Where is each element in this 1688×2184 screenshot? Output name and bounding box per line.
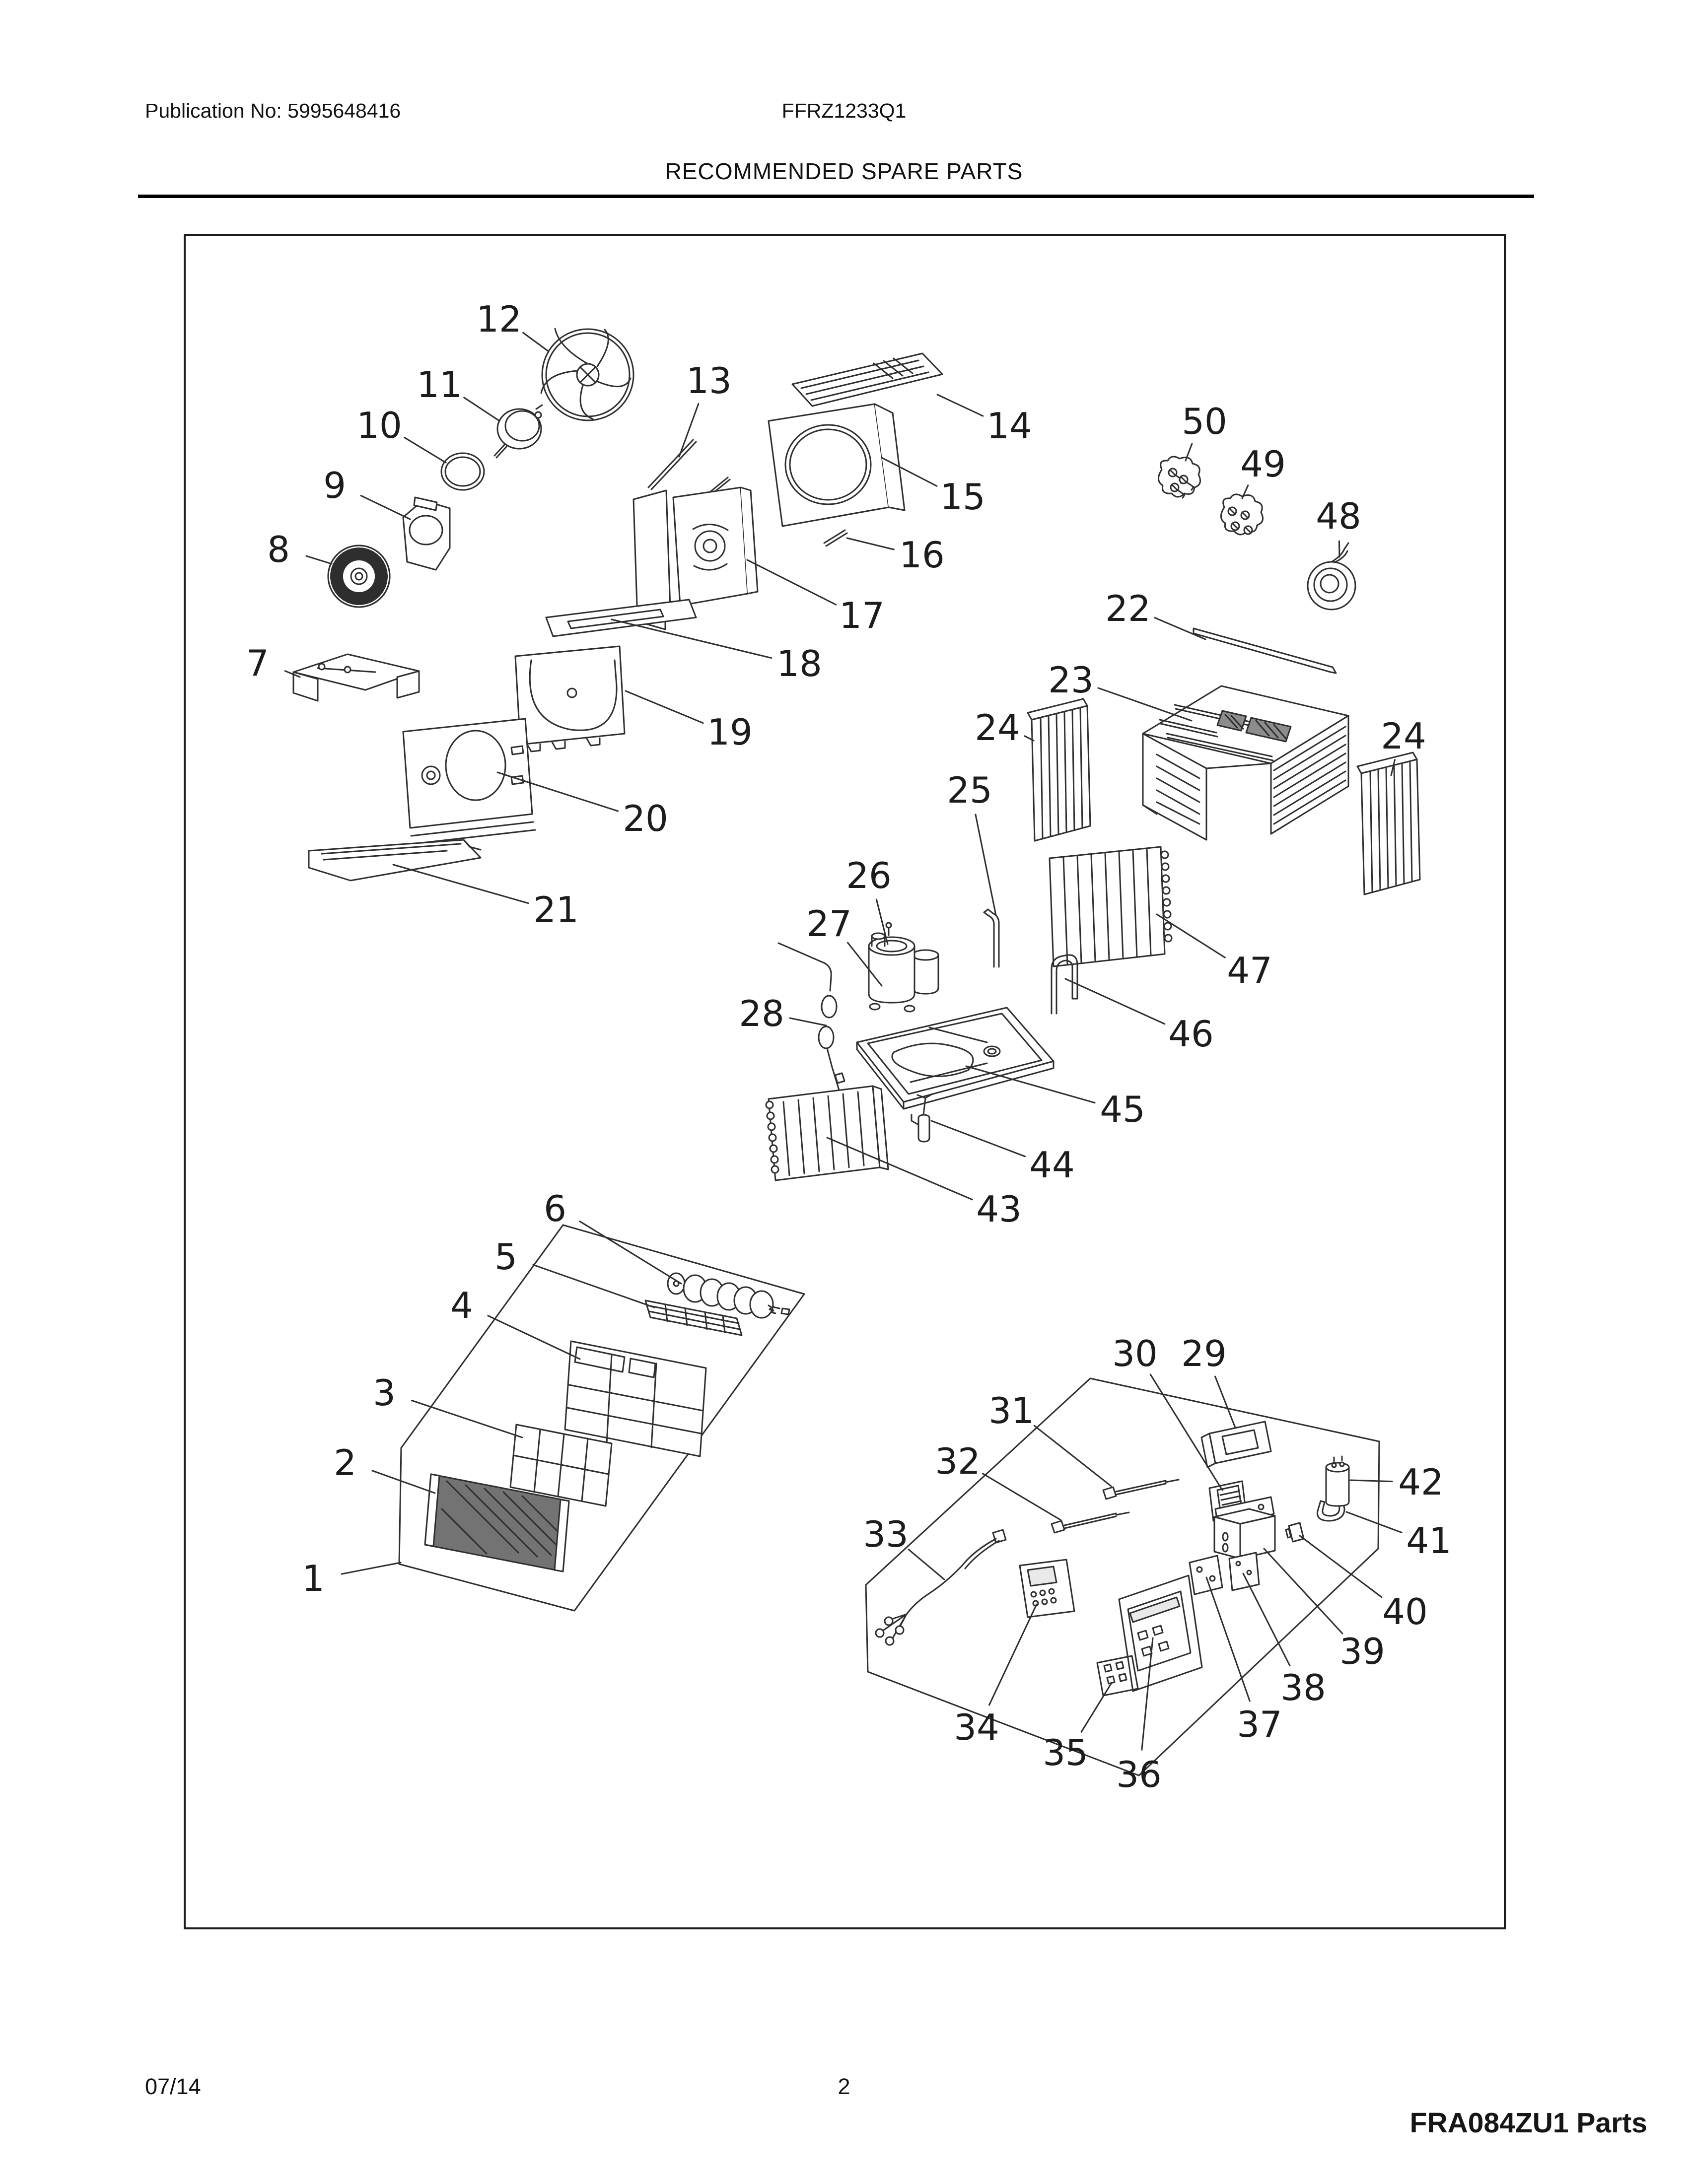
callout-42: 42	[1398, 1461, 1444, 1503]
callout-49: 49	[1240, 443, 1286, 485]
callout-47: 47	[1227, 950, 1272, 991]
leader-line-9	[361, 495, 410, 519]
callout-45: 45	[1100, 1089, 1145, 1130]
part-50-screw-kit	[1158, 457, 1200, 498]
callout-25: 25	[947, 769, 992, 811]
part-11-fan-motor	[494, 405, 542, 458]
callout-7: 7	[246, 642, 269, 684]
footer-page-number: 2	[0, 2074, 1688, 2100]
part-12-fan-blade	[541, 329, 633, 420]
control-assembly-outline	[866, 1378, 1379, 1775]
callout-32: 32	[935, 1440, 981, 1482]
callout-44: 44	[1029, 1144, 1075, 1186]
leader-line-6	[580, 1222, 681, 1284]
diagram-caption: FRA084ZU1 Parts	[1410, 2107, 1647, 2139]
callout-30: 30	[1112, 1333, 1158, 1374]
callout-21: 21	[533, 889, 579, 931]
part-24-side-panel-left	[1028, 699, 1090, 841]
part-42-capacitor	[1326, 1456, 1349, 1506]
callout-2: 2	[334, 1442, 356, 1484]
callout-31: 31	[988, 1390, 1034, 1432]
part-27-compressor	[869, 923, 938, 1012]
leader-line-5	[533, 1265, 654, 1307]
callout-13: 13	[686, 360, 732, 402]
callout-5: 5	[494, 1236, 517, 1278]
leader-line-22	[1155, 617, 1205, 639]
part-9-motor-mount	[403, 497, 450, 570]
leader-line-28	[790, 1018, 826, 1025]
leader-line-23	[1098, 688, 1192, 721]
part-28-sensor-tube	[778, 943, 844, 1090]
callout-1: 1	[302, 1558, 325, 1599]
leader-line-44	[931, 1121, 1025, 1157]
part-21-drain-rail	[309, 840, 481, 881]
leader-line-4	[488, 1316, 580, 1359]
leader-line-16	[847, 538, 894, 549]
callout-24: 24	[975, 707, 1020, 749]
part-16-brace-strip	[824, 530, 847, 546]
part-8-blower-wheel	[328, 546, 390, 607]
leader-line-41	[1346, 1512, 1402, 1533]
callout-26: 26	[846, 855, 892, 896]
callout-6: 6	[544, 1188, 566, 1229]
leader-line-10	[405, 437, 446, 463]
leader-line-46	[1065, 979, 1165, 1024]
callout-17: 17	[839, 595, 885, 636]
callout-3: 3	[373, 1372, 396, 1414]
part-44-valve	[912, 1094, 932, 1142]
part-48-seal-roll	[1308, 543, 1355, 610]
leader-line-40	[1300, 1536, 1382, 1597]
part-20-air-duct	[403, 719, 535, 844]
callout-35: 35	[1043, 1732, 1088, 1774]
callout-37: 37	[1237, 1704, 1282, 1745]
part-10-motor-ring	[441, 453, 484, 490]
leader-line-11	[464, 398, 499, 421]
callout-9: 9	[323, 465, 346, 506]
callout-18: 18	[776, 643, 822, 684]
leader-line-31	[1034, 1426, 1111, 1486]
part-18-base-plate	[546, 600, 696, 636]
leader-line-18	[612, 619, 772, 658]
callout-12: 12	[476, 298, 522, 340]
callout-16: 16	[899, 534, 945, 576]
leader-line-42	[1350, 1480, 1392, 1482]
callout-36: 36	[1116, 1754, 1162, 1795]
part-49-screw-kit	[1221, 494, 1263, 535]
part-35-display-board	[1097, 1656, 1138, 1696]
callout-23: 23	[1048, 659, 1094, 701]
part-24-side-panel-right	[1357, 752, 1420, 894]
callout-39: 39	[1339, 1631, 1385, 1672]
callout-43: 43	[976, 1188, 1022, 1230]
leader-line-19	[626, 691, 703, 723]
callout-22: 22	[1105, 588, 1151, 629]
part-34-remote-control	[1020, 1560, 1074, 1617]
callout-46: 46	[1168, 1013, 1214, 1055]
part-13-seal-strip	[648, 440, 730, 496]
callout-10: 10	[356, 405, 402, 446]
leader-line-48	[1339, 541, 1339, 557]
callout-29: 29	[1181, 1333, 1227, 1374]
part-23-cabinet-shell	[1143, 686, 1348, 840]
callout-4: 4	[450, 1285, 473, 1326]
leader-line-17	[747, 560, 836, 605]
callout-28: 28	[739, 993, 784, 1034]
part-29-bracket-plate	[1201, 1422, 1271, 1467]
part-45-base-pan	[857, 1008, 1054, 1109]
callout-38: 38	[1280, 1667, 1326, 1708]
callout-11: 11	[417, 364, 462, 406]
part-7-support-bracket	[293, 654, 419, 701]
part-40-switch	[1286, 1523, 1304, 1542]
callout-27: 27	[806, 903, 852, 945]
leader-line-3	[412, 1400, 522, 1437]
callout-20: 20	[623, 798, 668, 839]
part-31-sensor-probe	[1103, 1480, 1179, 1499]
callout-41: 41	[1406, 1520, 1452, 1562]
leader-line-33	[909, 1550, 944, 1579]
callout-40: 40	[1382, 1591, 1428, 1633]
leader-line-35	[1081, 1684, 1111, 1732]
callout-34: 34	[954, 1706, 999, 1748]
leader-line-8	[306, 556, 332, 564]
leader-line-2	[372, 1471, 435, 1493]
part-14-top-grille	[792, 353, 942, 406]
part-32-sensor-probe	[1052, 1512, 1129, 1533]
leader-line-12	[523, 333, 549, 351]
callout-50: 50	[1182, 401, 1227, 442]
leader-line-45	[966, 1066, 1095, 1103]
leader-line-14	[937, 395, 983, 416]
callout-33: 33	[863, 1513, 909, 1555]
leader-line-37	[1206, 1577, 1250, 1701]
part-15-fan-shroud	[769, 404, 905, 526]
callout-19: 19	[707, 711, 753, 753]
exploded-parts-diagram: 1234567891011121314151617181920212223242…	[0, 0, 1688, 2184]
leader-line-1	[342, 1563, 401, 1574]
part-37-mounting-plate	[1190, 1556, 1222, 1594]
leader-line-25	[976, 815, 996, 915]
leader-line-34	[989, 1604, 1037, 1705]
part-43-evaporator-coil	[766, 1086, 888, 1180]
parts-catalog-page: Publication No: 5995648416 FFRZ1233Q1 RE…	[0, 0, 1688, 2184]
leader-line-29	[1215, 1376, 1235, 1428]
callout-14: 14	[986, 405, 1032, 447]
leader-line-21	[393, 865, 528, 903]
callout-15: 15	[940, 476, 985, 518]
leader-line-38	[1243, 1573, 1290, 1666]
callout-24: 24	[1381, 715, 1426, 757]
leader-line-32	[983, 1474, 1060, 1520]
callout-48: 48	[1316, 495, 1361, 537]
callout-8: 8	[267, 529, 290, 570]
part-22-top-rail	[1194, 628, 1336, 673]
part-25-hook-bracket	[984, 909, 999, 967]
part-47-condenser-coil	[1050, 847, 1172, 966]
part-19-blower-housing	[515, 646, 625, 751]
